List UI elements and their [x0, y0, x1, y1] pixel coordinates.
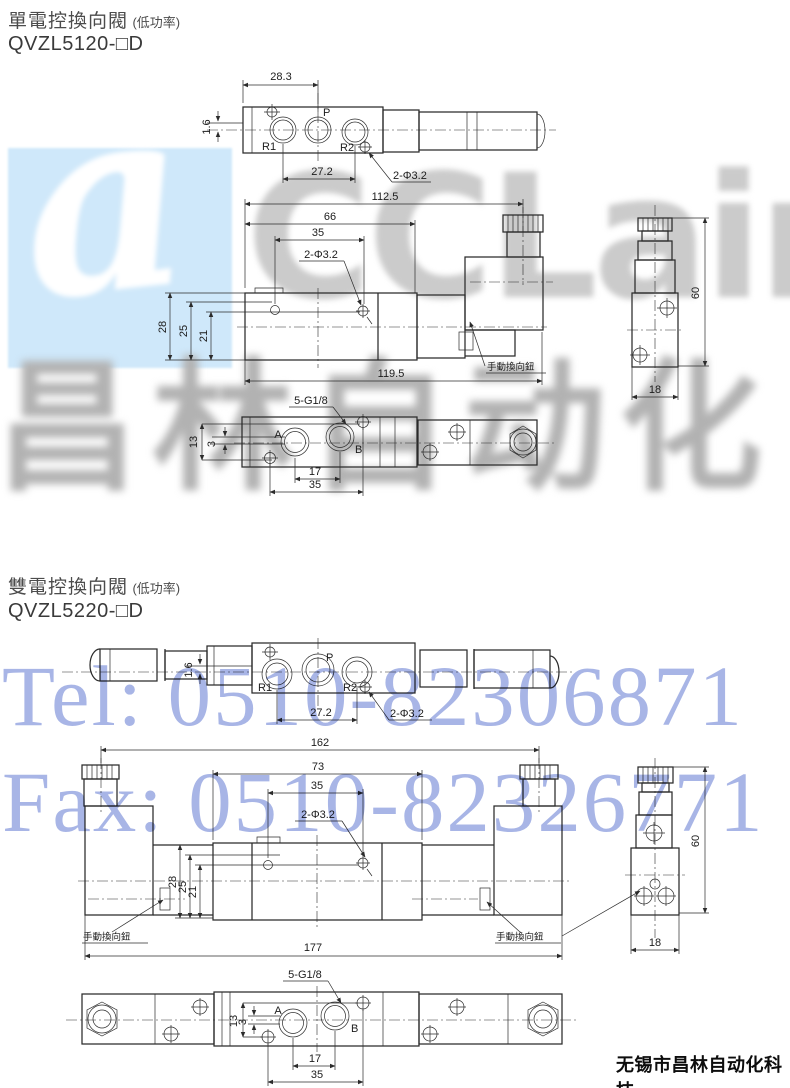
s1-port-p: P	[323, 107, 330, 119]
s1-top-holes-label: 2-Φ3.2	[393, 170, 427, 182]
s2-dim-3: 3	[237, 1019, 249, 1025]
fax-watermark: Fax: 0510-82326771	[2, 752, 765, 852]
section2-title: 雙電控換向閥 (低功率)	[8, 572, 180, 599]
footer-company-name: 无锡市昌林自动化科技	[616, 1051, 790, 1088]
s2-dim-17: 17	[309, 1053, 321, 1065]
s2-bottom-left-hex-icon	[87, 1002, 117, 1036]
s1-dim-13: 13	[188, 436, 200, 448]
s1-top-small-hole-icon	[358, 140, 372, 154]
s1-bottom-hole1-icon	[262, 450, 278, 466]
s2-dim-21: 21	[187, 886, 199, 898]
s1-dim-28: 28	[157, 321, 169, 333]
s1-top-view: 28.3 1.6 R1 P R2 27.2 2-Φ3.2	[201, 71, 556, 183]
s2-thread-label: 5-G1/8	[288, 969, 322, 981]
s2-bottom-left-screws-icon	[162, 998, 209, 1043]
s2-dim-18: 18	[649, 937, 661, 949]
s1-side-view: 60 18	[627, 205, 709, 400]
s1-dim-3: 3	[206, 441, 218, 447]
s1-dim-25: 25	[178, 325, 190, 337]
s1-front-tab-hole-icon	[271, 306, 280, 315]
s1-dim-35: 35	[312, 227, 324, 239]
s1-bottom-hex-fitting-icon	[510, 426, 536, 458]
s1-front-small-hole-icon	[356, 304, 372, 324]
section1-model-number: QVZL5120-□D	[8, 33, 143, 56]
s1-bottom-screw2-icon	[421, 443, 439, 461]
s1-dim-28-3: 28.3	[270, 71, 291, 83]
section1-title-text: 單電控換向閥	[8, 11, 128, 32]
s1-dim-60: 60	[690, 287, 702, 299]
s1-dim-35: 35	[309, 479, 321, 491]
s2-bottom-right-hex-icon	[528, 1002, 558, 1036]
technical-drawings: 28.3 1.6 R1 P R2 27.2 2-Φ3.2 112.5 66 35…	[0, 0, 790, 1088]
section2-title-text: 雙電控換向閥	[8, 577, 128, 598]
s1-dim-119-5: 119.5	[378, 368, 405, 380]
s2-bottom-right-screws-icon	[421, 998, 466, 1043]
s2-dim-177: 177	[304, 942, 322, 954]
s1-dim-112-5: 112.5	[372, 191, 399, 203]
s1-dim-1-6: 1.6	[201, 119, 213, 134]
section2-model-number: QVZL5220-□D	[8, 600, 143, 623]
tel-watermark: Tel: 0510-82306871	[2, 646, 744, 746]
s2-manual-override-left-label: 手動換向鈕	[83, 931, 131, 943]
s2-port-b: B	[351, 1023, 358, 1035]
s1-side-screw-icon	[657, 298, 677, 318]
s1-front-holes-label: 2-Φ3.2	[304, 249, 338, 261]
s1-port-b: B	[355, 444, 362, 456]
section1-title: 單電控換向閥 (低功率)	[8, 6, 180, 33]
s1-side-screw2-icon	[630, 345, 650, 365]
s1-manual-override-label: 手動換向鈕	[487, 361, 535, 373]
s1-bottom-screw1-icon	[448, 423, 466, 441]
s1-dim-18: 18	[649, 384, 661, 396]
s1-dim-21: 21	[198, 330, 210, 342]
s1-thread-label: 5-G1/8	[294, 395, 328, 407]
s2-manual-override-right-label: 手動換向鈕	[496, 931, 544, 943]
s1-dim-27-2: 27.2	[311, 166, 332, 178]
s2-port-a: A	[274, 1005, 282, 1017]
s1-port-r1: R1	[262, 141, 276, 153]
s1-bottom-view: 5-G1/8 A B	[188, 395, 557, 496]
s1-dim-17: 17	[309, 466, 321, 478]
s1-dim-66: 66	[324, 211, 336, 223]
s2-bottom-view: 5-G1/8 A B	[66, 969, 578, 1086]
s2-dim-35: 35	[311, 1069, 323, 1081]
s1-port-r2: R2	[340, 142, 354, 154]
catalog-page: a CCLair 昌林自动化 Tel: 0510-82306871 Fax: 0…	[0, 0, 790, 1088]
section2-title-note: (低功率)	[132, 581, 180, 596]
s1-port-a: A	[274, 429, 282, 441]
s2-front-small-hole-icon	[356, 856, 372, 876]
s1-front-view: 112.5 66 35 2-Φ3.2	[157, 191, 553, 385]
section1-title-note: (低功率)	[132, 15, 180, 30]
